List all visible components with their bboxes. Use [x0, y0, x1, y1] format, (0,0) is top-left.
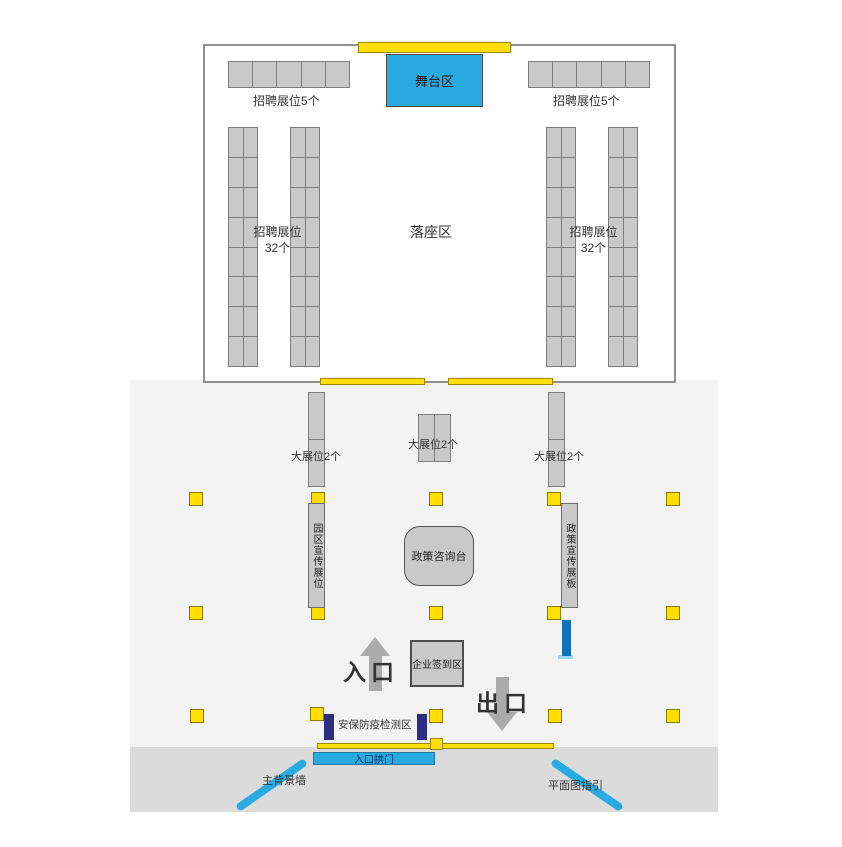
- security-gate-post-left: [324, 714, 334, 740]
- pillar: [548, 709, 562, 723]
- booth-cell: [244, 337, 258, 366]
- booth-cell: [306, 158, 320, 187]
- pillar: [429, 606, 443, 620]
- booth-cell: [577, 62, 600, 87]
- booth-cell: [529, 62, 552, 87]
- exit-label: 出口: [476, 684, 532, 718]
- booth-cell: [244, 158, 258, 187]
- booth-row-top-left-label: 招聘展位5个: [253, 92, 320, 109]
- booth-cell: [562, 337, 576, 366]
- booth-cell: [562, 188, 576, 217]
- booth-cell: [291, 188, 305, 217]
- booth-cell: [229, 307, 243, 336]
- hall-bottom-door-bar-right: [448, 378, 553, 385]
- seating-area-label: 落座区: [410, 222, 452, 242]
- pillar: [310, 707, 324, 721]
- booth-cell: [609, 307, 623, 336]
- pillar: [311, 606, 325, 620]
- booth-cell: [229, 337, 243, 366]
- floorplan-guide-label: 平面图指引: [548, 777, 603, 793]
- booth-cell: [553, 62, 576, 87]
- booth-columns-right-label: 招聘展位 32个: [556, 225, 631, 256]
- booth-cell: [244, 307, 258, 336]
- booth-cell: [624, 307, 638, 336]
- pillar: [666, 606, 680, 620]
- booth-row-top-left: [228, 61, 350, 88]
- entrance-arch: 入口拱门: [313, 752, 435, 765]
- booth-cell: [547, 128, 561, 157]
- booth-cell: [291, 337, 305, 366]
- booth-cell: [306, 188, 320, 217]
- pillar: [189, 606, 203, 620]
- booth-cell: [244, 277, 258, 306]
- pillar: [547, 606, 561, 620]
- booth-cell: [326, 62, 349, 87]
- pillar: [189, 492, 203, 506]
- booth-cell: [277, 62, 300, 87]
- booth-cell: [306, 337, 320, 366]
- pillar: [429, 492, 443, 506]
- booth-columns-left-label-line2: 32个: [265, 241, 290, 255]
- booth-cell: [547, 337, 561, 366]
- pillar: [547, 492, 561, 506]
- booth-columns-left-label: 招聘展位 32个: [240, 225, 315, 256]
- booth-cell: [609, 188, 623, 217]
- hall-top-door-bar: [358, 42, 511, 53]
- booth-cell: [229, 128, 243, 157]
- booth-cell: [309, 393, 324, 439]
- booth-cell: [624, 337, 638, 366]
- booth-cell: [229, 158, 243, 187]
- booth-cell: [547, 188, 561, 217]
- booth-cell: [306, 277, 320, 306]
- booth-cell: [547, 277, 561, 306]
- booth-cell: [624, 158, 638, 187]
- booth-cell: [291, 307, 305, 336]
- large-booth-right: [548, 392, 565, 487]
- booth-cell: [244, 128, 258, 157]
- large-booth-right-label: 大展位2个: [534, 448, 584, 464]
- park-promo-booth-label: 园区宣传展位: [309, 504, 324, 607]
- signin-area: 企业签到区: [410, 640, 464, 687]
- booth-cell: [609, 277, 623, 306]
- booth-cell: [229, 62, 252, 87]
- booth-cell: [306, 128, 320, 157]
- booth-cell: [291, 128, 305, 157]
- booth-cell: [609, 158, 623, 187]
- stage-area: 舞台区: [386, 54, 483, 107]
- booth-cell: [562, 277, 576, 306]
- booth-cell: [244, 188, 258, 217]
- booth-columns-right-label-line2: 32个: [581, 241, 606, 255]
- booth-columns-right-label-line1: 招聘展位: [569, 225, 617, 239]
- booth-cell: [562, 307, 576, 336]
- policy-desk: 政策咨询台: [404, 526, 474, 586]
- booth-cell: [229, 277, 243, 306]
- floor-plan-canvas: 舞台区 招聘展位5个 招聘展位5个 招聘展位 32个 招聘展位 32个 落座区 …: [0, 0, 842, 847]
- pillar: [666, 709, 680, 723]
- booth-cell: [547, 158, 561, 187]
- booth-cell: [562, 128, 576, 157]
- large-booth-center-label: 大展位2个: [408, 436, 458, 452]
- blue-marker-bar: [562, 620, 571, 656]
- booth-cell: [609, 128, 623, 157]
- booth-columns-left-label-line1: 招聘展位: [253, 225, 301, 239]
- background-wall-label: 主背景墙: [262, 772, 306, 788]
- booth-cell: [253, 62, 276, 87]
- large-booth-left-label: 大展位2个: [291, 448, 341, 464]
- booth-cell: [549, 393, 564, 439]
- booth-cell: [229, 188, 243, 217]
- booth-cell: [624, 277, 638, 306]
- security-check-label: 安保防疫检测区: [338, 717, 412, 732]
- entrance-label: 入口: [343, 653, 399, 687]
- booth-cell: [291, 158, 305, 187]
- hall-bottom-door-bar-left: [320, 378, 425, 385]
- booth-row-top-right: [528, 61, 650, 88]
- park-promo-booth: 园区宣传展位: [308, 503, 325, 608]
- booth-cell: [602, 62, 625, 87]
- booth-cell: [562, 158, 576, 187]
- pillar: [666, 492, 680, 506]
- pillar: [429, 709, 443, 723]
- booth-cell: [547, 307, 561, 336]
- booth-row-top-right-label: 招聘展位5个: [553, 92, 620, 109]
- large-booth-left: [308, 392, 325, 487]
- booth-cell: [626, 62, 649, 87]
- booth-cell: [302, 62, 325, 87]
- booth-cell: [291, 277, 305, 306]
- pillar: [190, 709, 204, 723]
- booth-cell: [609, 337, 623, 366]
- booth-cell: [306, 307, 320, 336]
- security-gate-post-right: [417, 714, 427, 740]
- barrier-post: [430, 738, 443, 750]
- policy-board-label: 政策宣传展板: [562, 504, 577, 607]
- booth-cell: [624, 128, 638, 157]
- policy-board-booth: 政策宣传展板: [561, 503, 578, 608]
- booth-cell: [624, 188, 638, 217]
